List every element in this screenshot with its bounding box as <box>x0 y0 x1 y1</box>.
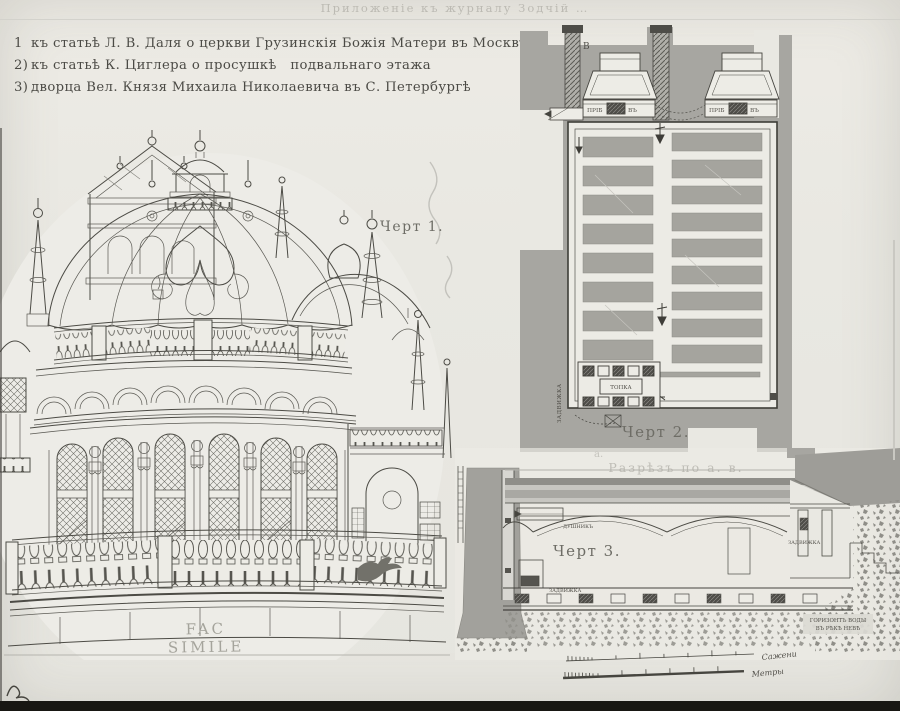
scale-label-metry: Метры <box>750 667 784 679</box>
firebox-label: ТОПКА <box>610 385 632 391</box>
scale-label-sazheni: Сажени <box>761 649 797 662</box>
scale-bar-metry <box>563 666 744 678</box>
scale-bar-sazheni <box>566 649 754 660</box>
entry-text: къ статьѣ К. Циглера о просушкѣ подвальн… <box>31 58 431 73</box>
stove-left-label-suffix: ВЪ <box>628 108 637 114</box>
plate-bottom-bar <box>0 701 900 711</box>
entry-text: дворца Вел. Князя Михаила Николаевича въ… <box>31 80 471 95</box>
section-damper-left-label: ЗАДВИЖКА <box>549 588 581 594</box>
entry-text: къ статьѣ Л. В. Даля о церкви Грузинскія… <box>31 36 528 51</box>
fig2-caption: Черт 2. <box>608 423 704 441</box>
rubble-left <box>455 638 527 652</box>
plan-point-b-label: В <box>583 42 590 52</box>
fig1-caption: Черт 1. <box>380 219 444 235</box>
entry-number: 3) <box>14 80 31 95</box>
entry-number: 1 <box>14 36 31 51</box>
caption-list: 1 къ статьѣ Л. В. Даля о церкви Грузинск… <box>14 36 528 102</box>
plate-left-edge <box>0 128 2 702</box>
rubble-bed <box>503 612 823 648</box>
dome-engraving <box>0 128 460 660</box>
stove-right-label-prefix: ПРІБ <box>709 108 725 114</box>
section-vent-label: ДУШНИКЪ <box>563 524 593 530</box>
plan-damper-mark <box>770 393 777 400</box>
caption-entry: 3) дворца Вел. Князя Михаила Николаевича… <box>14 80 528 95</box>
plate-right-streak <box>893 240 895 460</box>
journal-masthead: Приложеніе къ журналу Зодчій … <box>250 1 660 15</box>
plan-damper-vertical-label: ЗАДВИЖКА <box>557 383 563 423</box>
water-level-line1: ГОРИЗОНТЪ ВОДЫ <box>810 618 866 624</box>
top-rule <box>0 19 900 20</box>
lithograph-plate: Приложеніе къ журналу Зодчій … 1 къ стат… <box>0 0 900 711</box>
facsimile-label: FAC SIMILE <box>148 619 265 657</box>
water-level-line2: ВЪ РѢКѢ НЕВѢ <box>816 626 860 632</box>
basement-plan: В ПРІБ ВЪ ПРІБ ВЪ <box>505 25 805 460</box>
elbow-duct <box>545 108 583 120</box>
basement-section: ЗАДВИЖКА ДУШНИКЪ ЗАДВИЖКА <box>455 448 900 660</box>
plate-corner-mark <box>4 678 34 702</box>
section-damper-right-label: ЗАДВИЖКА <box>788 540 820 546</box>
entry-number: 2) <box>14 58 31 73</box>
caption-entry: 1 къ статьѣ Л. В. Даля о церкви Грузинск… <box>14 36 528 51</box>
stove-left-label-prefix: ПРІБ <box>587 108 603 114</box>
caption-entry: 2) къ статьѣ К. Циглера о просушкѣ подва… <box>14 58 528 73</box>
stove-right-label-suffix: ВЪ <box>750 108 759 114</box>
plan-room: ТОПКА <box>568 122 777 408</box>
fig3-caption: Черт 3. <box>545 542 629 560</box>
scale-bars: Сажени Метры <box>558 646 818 690</box>
water-level-note: ГОРИЗОНТЪ ВОДЫ ВЪ РѢКѢ НЕВѢ <box>803 614 873 634</box>
